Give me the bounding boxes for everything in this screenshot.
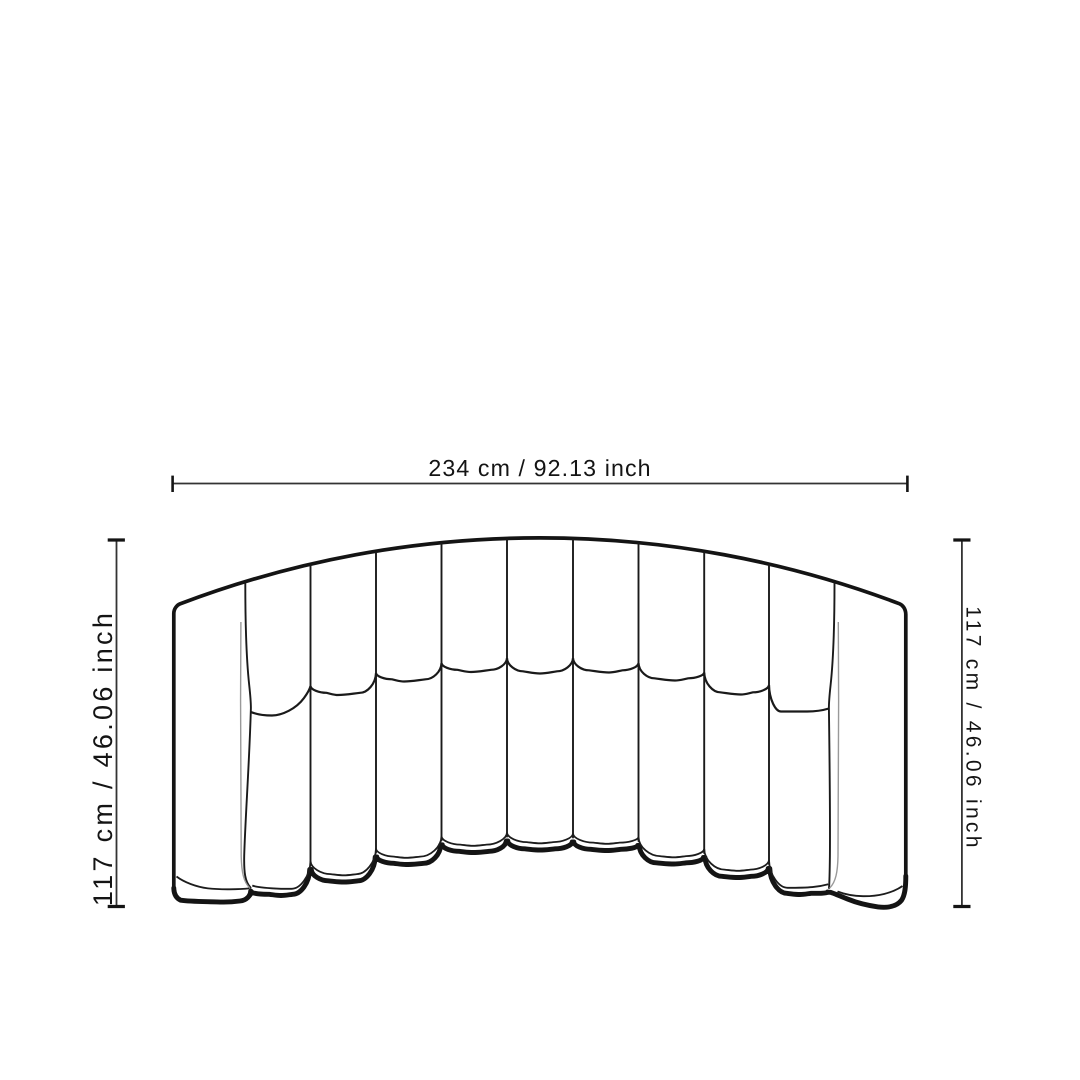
svg-text:117 cm / 46.06 inch: 117 cm / 46.06 inch xyxy=(962,606,985,850)
svg-text:117 cm / 46.06 inch: 117 cm / 46.06 inch xyxy=(88,610,118,906)
svg-text:234 cm / 92.13 inch: 234 cm / 92.13 inch xyxy=(428,455,651,481)
